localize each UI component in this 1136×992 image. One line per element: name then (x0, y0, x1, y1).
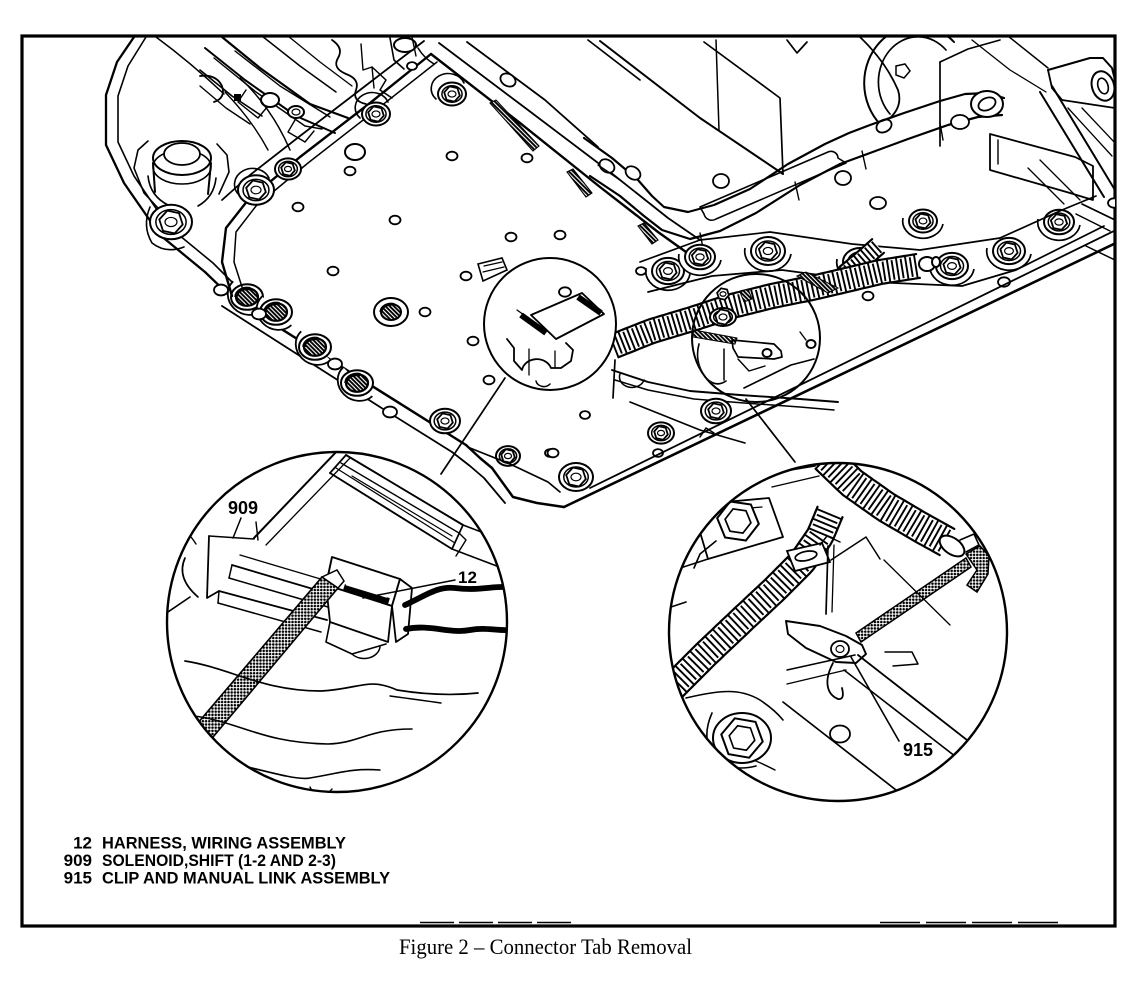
svg-text:SOLENOID,SHIFT (1-2 AND 2-3): SOLENOID,SHIFT (1-2 AND 2-3) (102, 851, 336, 870)
svg-text:12: 12 (73, 834, 92, 853)
svg-text:915: 915 (903, 740, 933, 760)
svg-text:12: 12 (458, 568, 477, 587)
svg-text:Figure 2 – Connector Tab Remov: Figure 2 – Connector Tab Removal (399, 934, 692, 959)
svg-text:909: 909 (228, 498, 258, 518)
svg-text:909: 909 (64, 851, 92, 870)
svg-text:CLIP AND MANUAL LINK ASSEMBLY: CLIP AND MANUAL LINK ASSEMBLY (102, 869, 391, 888)
svg-text:HARNESS, WIRING ASSEMBLY: HARNESS, WIRING ASSEMBLY (102, 834, 347, 853)
svg-text:915: 915 (64, 869, 92, 888)
